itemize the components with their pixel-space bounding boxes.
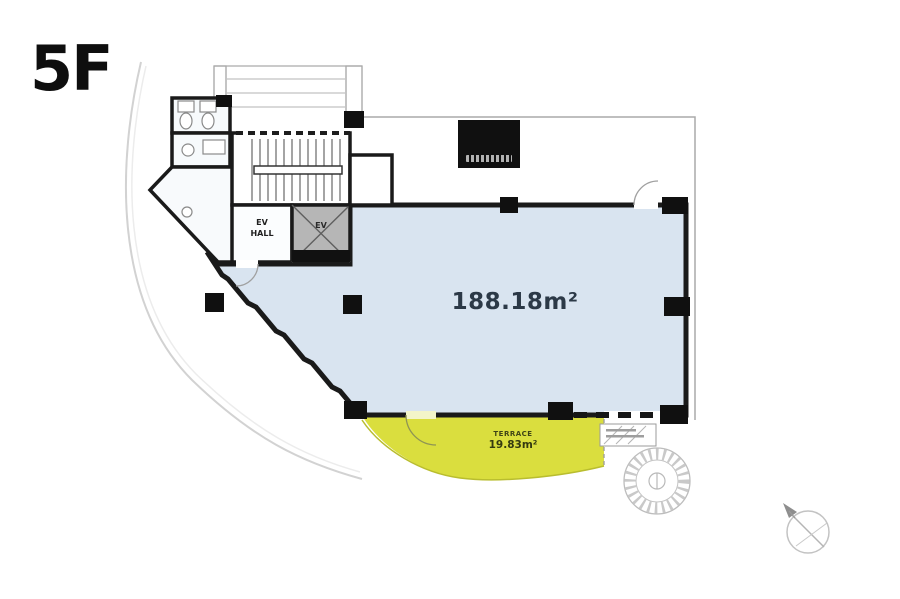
main-room-area-label: 188.18m²: [405, 289, 625, 315]
vestibule-room: [350, 155, 392, 205]
floor-label: 5F: [30, 38, 112, 100]
logo-box: [458, 120, 520, 168]
ev-hall-line2: HALL: [236, 229, 288, 240]
column: [344, 401, 367, 419]
column: [343, 295, 362, 314]
elevator-sill: [292, 250, 350, 262]
terrace-area: 19.83m²: [458, 439, 568, 451]
door-gap: [634, 201, 658, 209]
ev-hall-line1: EV: [236, 218, 288, 229]
column: [548, 402, 573, 420]
ev-hall-label: EV HALL: [236, 218, 288, 240]
column: [500, 197, 518, 213]
logo-text-smudge: [466, 155, 512, 162]
annotation-hatch: [600, 424, 656, 446]
column: [344, 111, 364, 128]
column: [660, 405, 688, 424]
stair-handrail: [254, 166, 342, 174]
door-gap: [406, 411, 436, 419]
column: [662, 197, 688, 214]
north-arrow-icon: [783, 503, 829, 553]
column: [216, 95, 232, 107]
spiral-stair-symbol: [624, 448, 690, 514]
terrace-name: TERRACE: [458, 430, 568, 438]
terrace-label: TERRACE 19.83m²: [458, 430, 568, 451]
column: [664, 297, 690, 316]
elevator-label: EV: [299, 221, 343, 230]
column: [205, 293, 224, 312]
door-gap: [236, 260, 258, 268]
floorplan-page: 5F 188.18m² TERRACE 19.83m² EV HALL EV: [0, 0, 900, 599]
balcony-structure: [214, 66, 362, 126]
